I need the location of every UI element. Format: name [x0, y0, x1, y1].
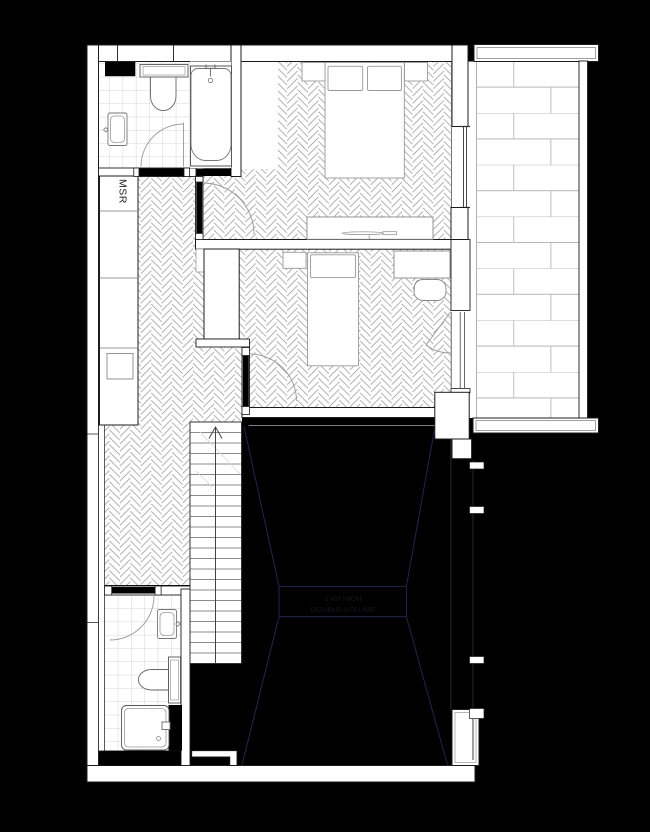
svg-text:MSR: MSR: [117, 179, 129, 204]
svg-text:DOUBLE VOLUME: DOUBLE VOLUME: [311, 605, 376, 614]
svg-text:2.4M HIGH: 2.4M HIGH: [324, 594, 362, 603]
